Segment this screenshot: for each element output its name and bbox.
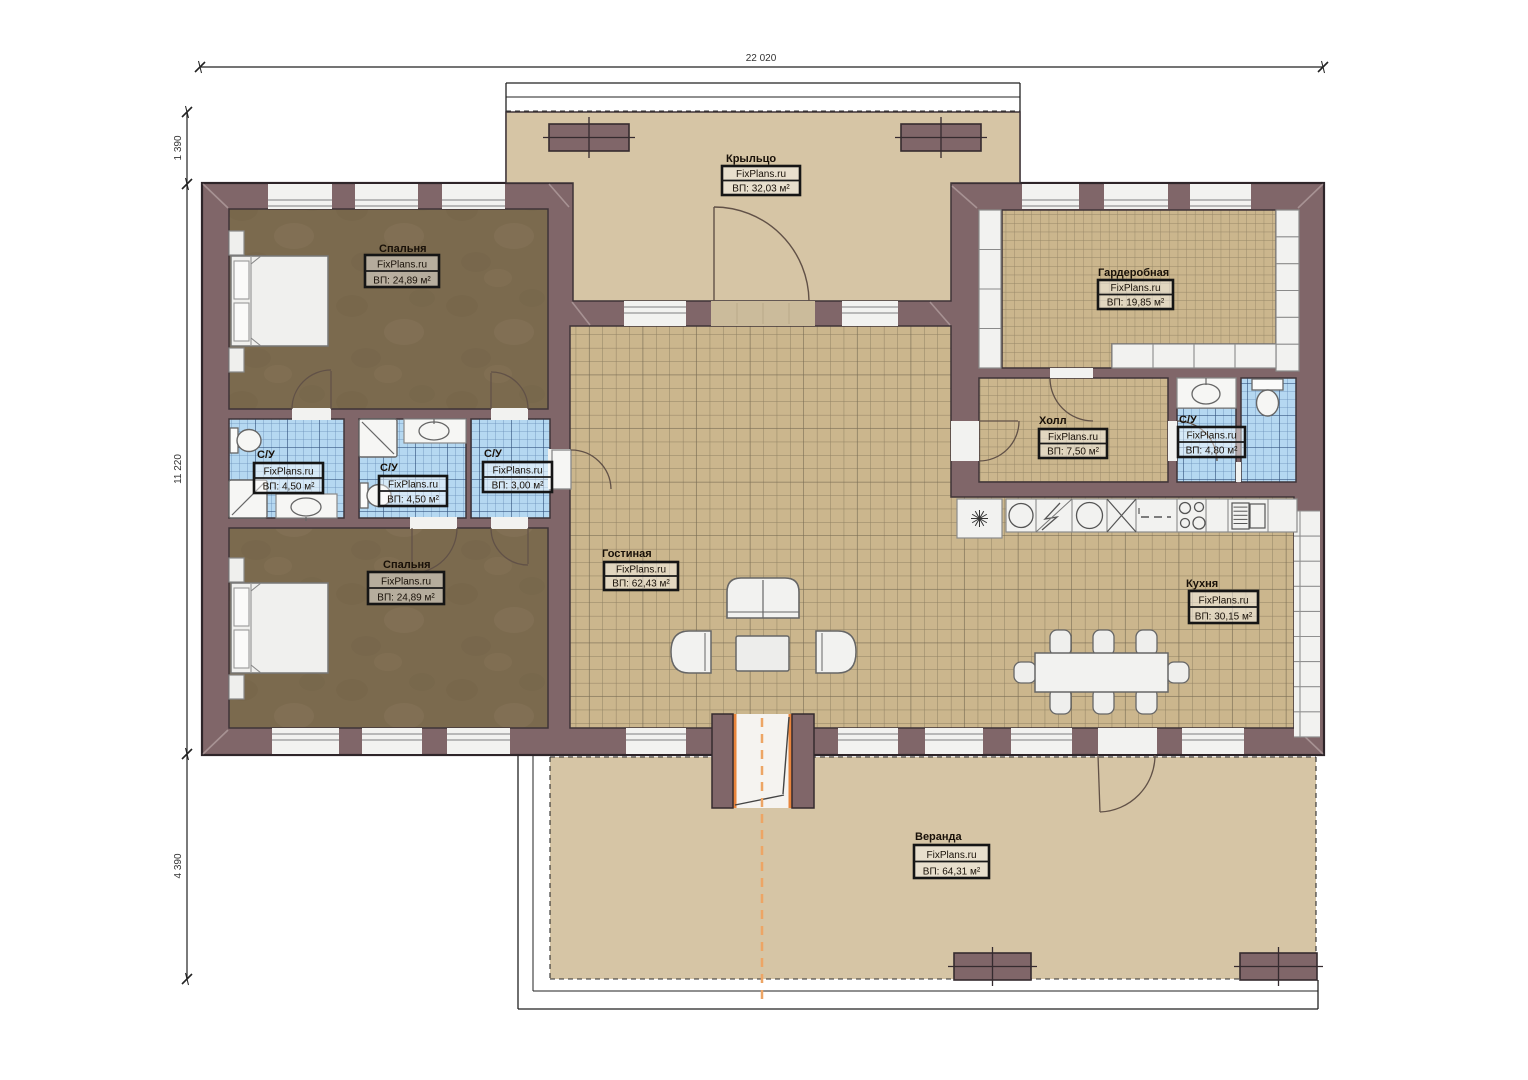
svg-text:ВП: 62,43 м²: ВП: 62,43 м²: [612, 579, 670, 590]
svg-text:FixPlans.ru: FixPlans.ru: [616, 565, 666, 576]
svg-text:С/У: С/У: [257, 449, 275, 461]
svg-text:Спальня: Спальня: [379, 243, 427, 255]
svg-text:FixPlans.ru: FixPlans.ru: [492, 466, 542, 477]
svg-text:С/У: С/У: [380, 462, 398, 474]
svg-text:22 020: 22 020: [746, 53, 777, 64]
svg-text:ВП: 4,50 м²: ВП: 4,50 м²: [387, 495, 440, 506]
svg-text:ВП: 19,85 м²: ВП: 19,85 м²: [1107, 298, 1165, 309]
svg-text:FixPlans.ru: FixPlans.ru: [388, 480, 438, 491]
svg-text:FixPlans.ru: FixPlans.ru: [263, 467, 313, 478]
svg-text:ВП: 24,89 м²: ВП: 24,89 м²: [377, 593, 435, 604]
svg-text:ВП: 4,80 м²: ВП: 4,80 м²: [1186, 446, 1239, 457]
svg-text:11 220: 11 220: [173, 454, 184, 484]
svg-text:1 390: 1 390: [173, 135, 184, 160]
svg-text:Холл: Холл: [1039, 415, 1067, 427]
svg-text:FixPlans.ru: FixPlans.ru: [1198, 596, 1248, 607]
svg-text:С/У: С/У: [484, 448, 502, 460]
svg-text:Гардеробная: Гардеробная: [1098, 267, 1169, 279]
svg-text:Спальня: Спальня: [383, 559, 431, 571]
svg-text:FixPlans.ru: FixPlans.ru: [377, 260, 427, 271]
svg-text:FixPlans.ru: FixPlans.ru: [381, 577, 431, 588]
svg-text:С/У: С/У: [1179, 414, 1197, 426]
svg-text:FixPlans.ru: FixPlans.ru: [1186, 431, 1236, 442]
svg-text:ВП: 4,50 м²: ВП: 4,50 м²: [263, 482, 316, 493]
svg-text:FixPlans.ru: FixPlans.ru: [1048, 432, 1098, 443]
svg-text:FixPlans.ru: FixPlans.ru: [736, 169, 786, 180]
svg-text:ВП: 24,89 м²: ВП: 24,89 м²: [373, 276, 431, 287]
svg-text:FixPlans.ru: FixPlans.ru: [926, 850, 976, 861]
svg-text:4 390: 4 390: [173, 853, 184, 878]
svg-text:ВП: 3,00 м²: ВП: 3,00 м²: [492, 481, 545, 492]
svg-text:ВП: 32,03 м²: ВП: 32,03 м²: [732, 184, 790, 195]
svg-text:ВП: 64,31 м²: ВП: 64,31 м²: [923, 867, 981, 878]
svg-text:FixPlans.ru: FixPlans.ru: [1110, 283, 1160, 294]
svg-text:ВП: 30,15 м²: ВП: 30,15 м²: [1195, 612, 1253, 623]
svg-text:Гостиная: Гостиная: [602, 548, 652, 560]
svg-text:Веранда: Веранда: [915, 831, 963, 843]
svg-text:Кухня: Кухня: [1186, 578, 1218, 590]
svg-text:Крыльцо: Крыльцо: [726, 153, 776, 165]
svg-text:ВП: 7,50 м²: ВП: 7,50 м²: [1047, 447, 1100, 458]
